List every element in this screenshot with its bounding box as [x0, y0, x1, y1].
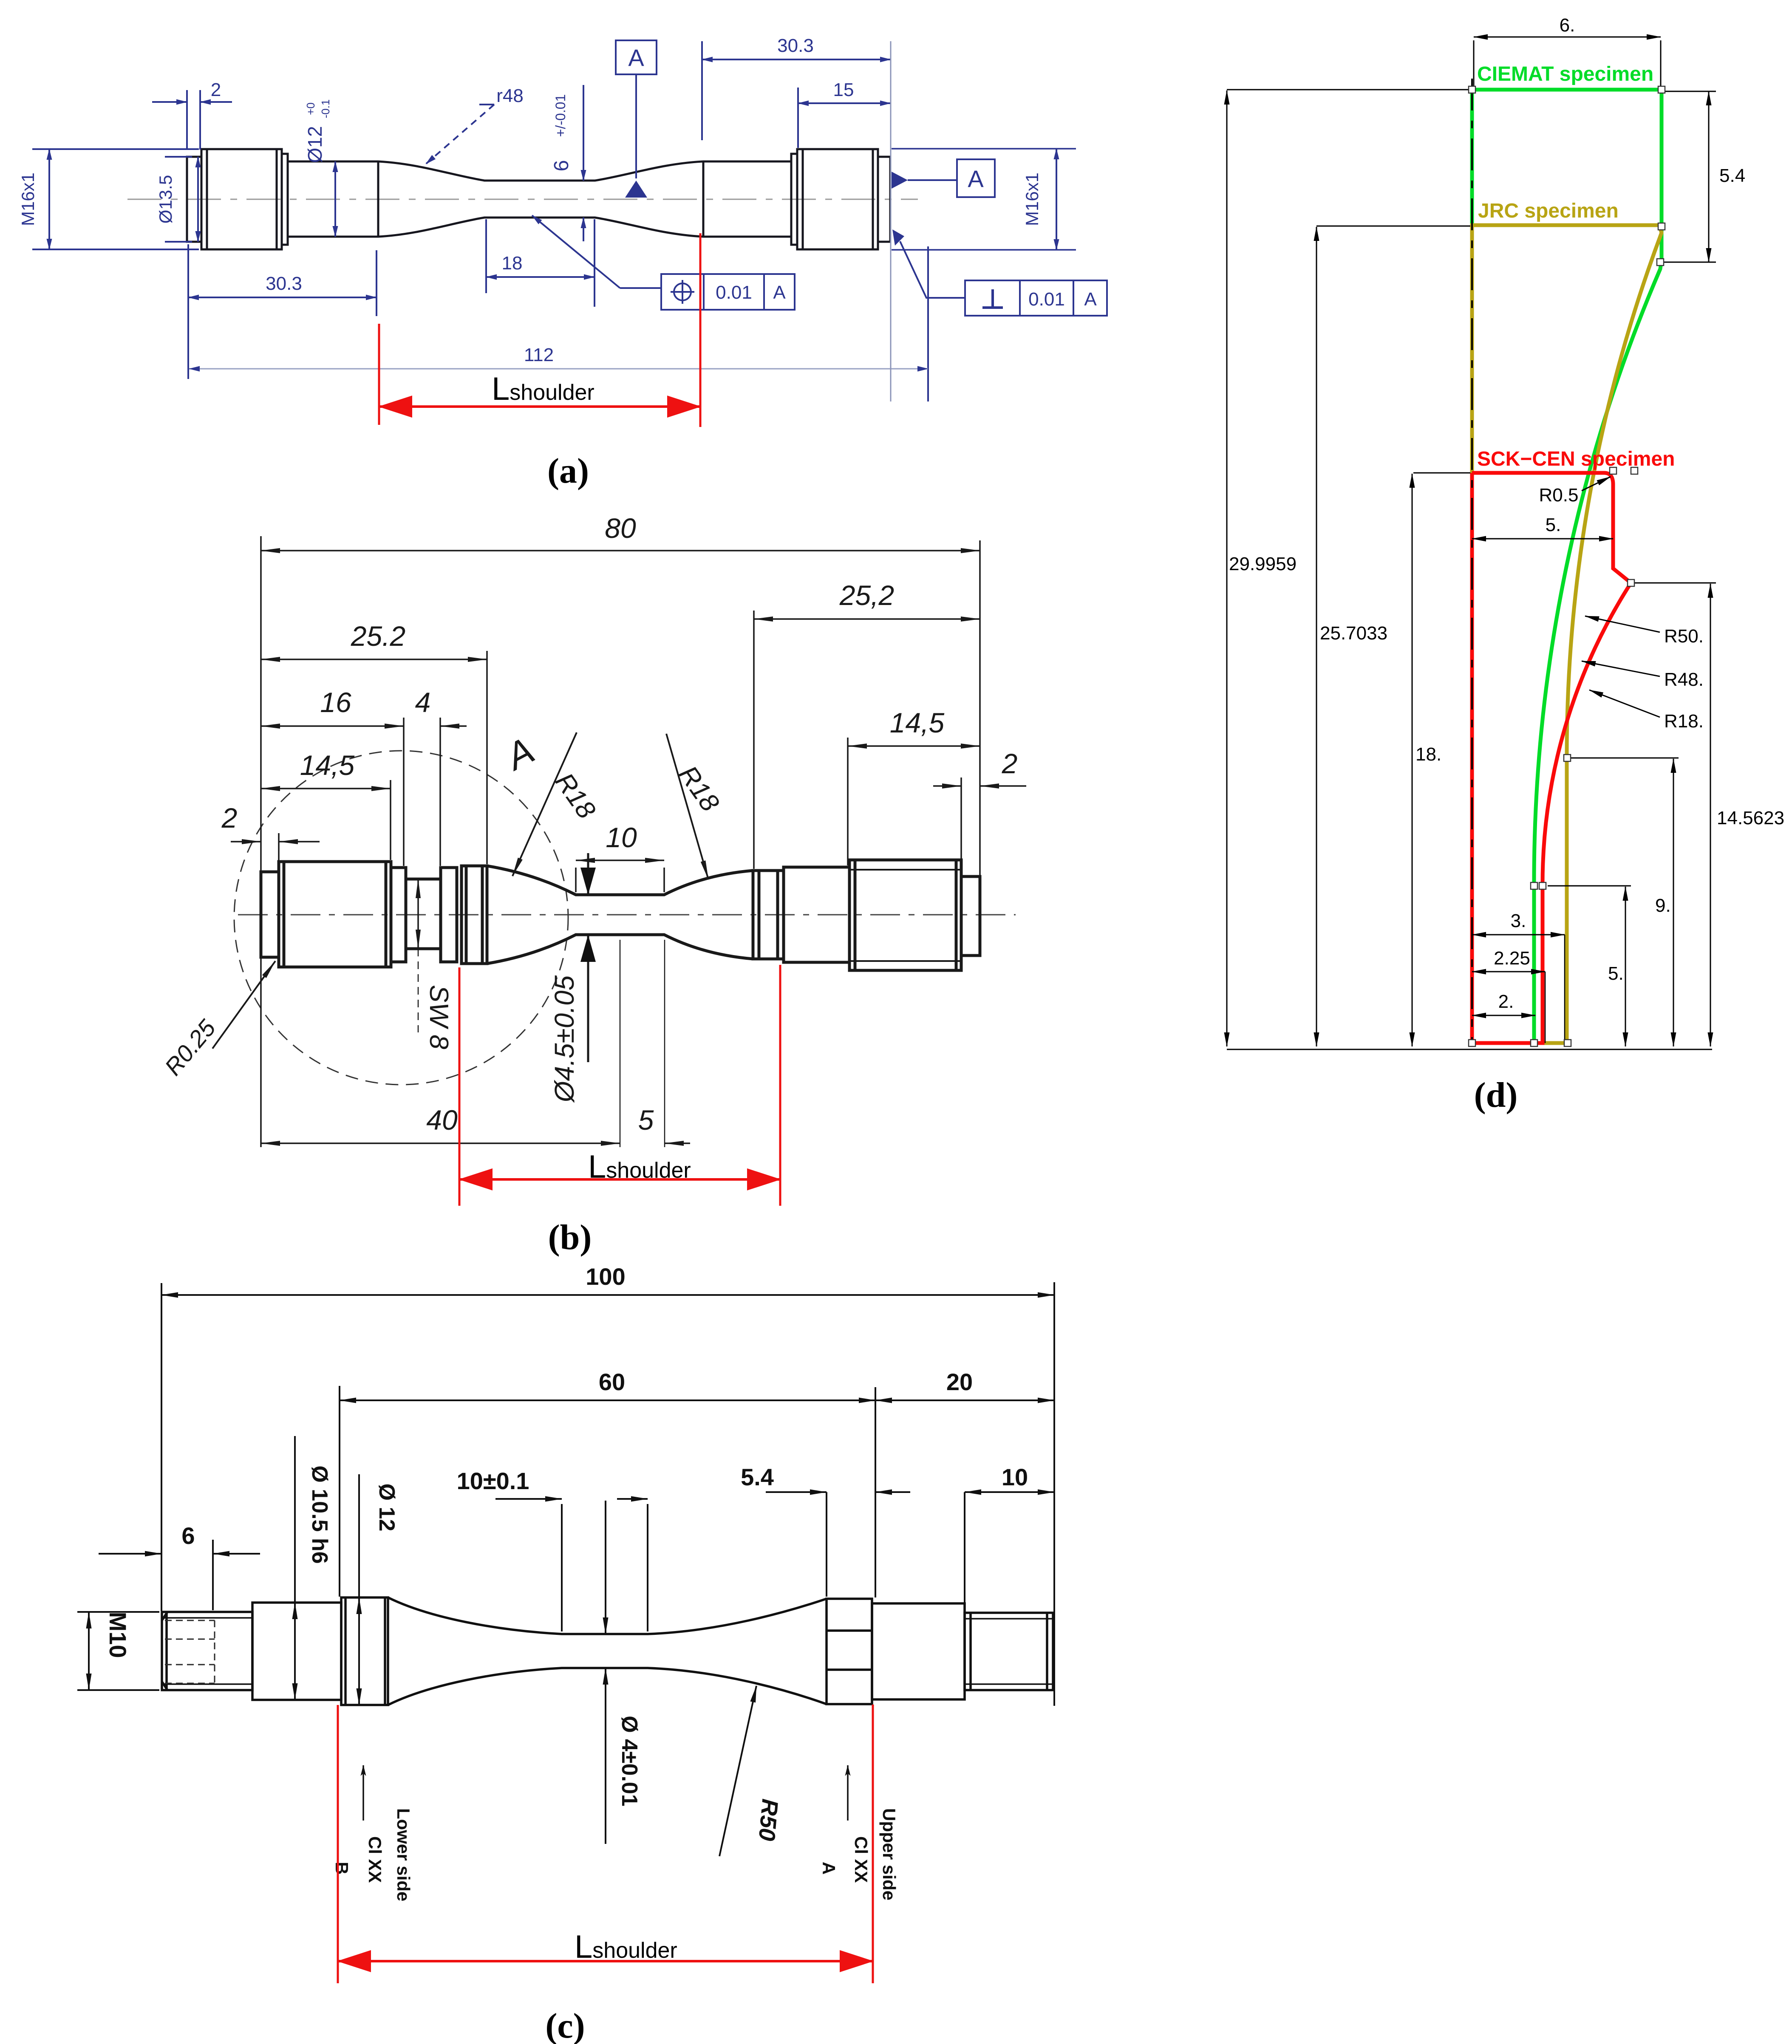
svg-text:29.9959: 29.9959 [1229, 554, 1297, 574]
svg-text:SCK−CEN specimen: SCK−CEN specimen [1477, 448, 1675, 470]
svg-text:2: 2 [1002, 748, 1018, 779]
svg-text:4: 4 [415, 687, 431, 718]
svg-text:M16x1: M16x1 [1022, 172, 1042, 226]
svg-text:M10: M10 [105, 1612, 131, 1658]
svg-text:14.5623: 14.5623 [1717, 808, 1784, 828]
svg-text:JRC specimen: JRC specimen [1478, 200, 1619, 222]
svg-text:Cl XX: Cl XX [365, 1836, 385, 1883]
svg-text:A: A [1084, 289, 1097, 310]
svg-text:+0: +0 [304, 102, 317, 115]
svg-text:25.2: 25.2 [351, 620, 405, 652]
svg-text:(a): (a) [547, 451, 589, 491]
svg-text:Ø4.5±0.05: Ø4.5±0.05 [549, 975, 580, 1103]
svg-text:6: 6 [181, 1522, 195, 1549]
svg-text:5.4: 5.4 [1719, 165, 1745, 186]
svg-text:25.7033: 25.7033 [1320, 623, 1387, 644]
svg-text:(b): (b) [548, 1218, 592, 1257]
svg-text:20: 20 [946, 1368, 973, 1395]
svg-text:-0.1: -0.1 [319, 99, 332, 119]
svg-text:Upper side: Upper side [879, 1808, 899, 1900]
svg-text:6.: 6. [1560, 15, 1575, 36]
svg-text:3.: 3. [1511, 910, 1526, 931]
svg-text:CIEMAT specimen: CIEMAT specimen [1477, 63, 1653, 85]
svg-text:80: 80 [605, 512, 636, 544]
svg-text:5.: 5. [1608, 963, 1624, 984]
svg-text:R18.: R18. [1664, 711, 1704, 732]
svg-text:10: 10 [1002, 1464, 1028, 1490]
svg-text:Lower side: Lower side [394, 1808, 413, 1901]
svg-text:25,2: 25,2 [839, 580, 894, 611]
svg-text:30.3: 30.3 [777, 35, 814, 56]
svg-text:+/-0.01: +/-0.01 [553, 94, 568, 137]
svg-text:40: 40 [426, 1104, 458, 1136]
svg-text:2.: 2. [1498, 991, 1514, 1012]
svg-text:(d): (d) [1474, 1075, 1518, 1115]
svg-text:B: B [332, 1862, 352, 1874]
svg-text:14,5: 14,5 [300, 749, 355, 781]
svg-text:A: A [819, 1862, 839, 1874]
svg-text:r48: r48 [496, 85, 524, 106]
svg-text:18.: 18. [1415, 744, 1441, 765]
svg-text:10±0.1: 10±0.1 [457, 1467, 529, 1494]
svg-text:Ø 10.5 h6: Ø 10.5 h6 [307, 1465, 332, 1563]
svg-text:SW 8: SW 8 [424, 985, 453, 1049]
svg-text:5.4: 5.4 [741, 1464, 774, 1490]
svg-text:5.: 5. [1546, 515, 1561, 535]
svg-text:60: 60 [599, 1368, 625, 1395]
svg-text:15: 15 [833, 79, 854, 100]
svg-text:6: 6 [550, 160, 573, 172]
svg-text:Ø 12: Ø 12 [374, 1484, 399, 1532]
svg-text:R50.: R50. [1664, 626, 1704, 647]
svg-text:10: 10 [606, 822, 637, 853]
svg-text:Ø13.5: Ø13.5 [156, 175, 176, 223]
svg-text:Ø12: Ø12 [304, 126, 326, 163]
svg-text:14,5: 14,5 [890, 707, 945, 738]
svg-text:R48.: R48. [1664, 669, 1704, 690]
svg-text:A: A [968, 165, 984, 192]
svg-text:A: A [628, 44, 644, 71]
svg-text:2.25: 2.25 [1494, 948, 1530, 969]
svg-text:9.: 9. [1655, 895, 1671, 916]
svg-text:2: 2 [211, 79, 221, 100]
svg-text:112: 112 [524, 345, 554, 365]
svg-text:Ø 4±0.01: Ø 4±0.01 [617, 1716, 642, 1807]
svg-text:30.3: 30.3 [266, 273, 302, 294]
svg-text:(c): (c) [545, 2006, 585, 2044]
svg-text:2: 2 [221, 802, 238, 834]
svg-text:A: A [773, 282, 786, 303]
svg-text:18: 18 [502, 253, 523, 274]
svg-text:M16x1: M16x1 [18, 172, 38, 226]
svg-text:R50: R50 [754, 1798, 783, 1842]
svg-text:16: 16 [320, 687, 351, 718]
svg-text:R0.5: R0.5 [1539, 485, 1579, 506]
svg-text:100: 100 [586, 1263, 625, 1290]
svg-text:5: 5 [638, 1104, 654, 1136]
svg-text:0.01: 0.01 [716, 282, 752, 303]
svg-text:Cl XX: Cl XX [851, 1836, 871, 1883]
svg-text:0.01: 0.01 [1028, 289, 1065, 310]
